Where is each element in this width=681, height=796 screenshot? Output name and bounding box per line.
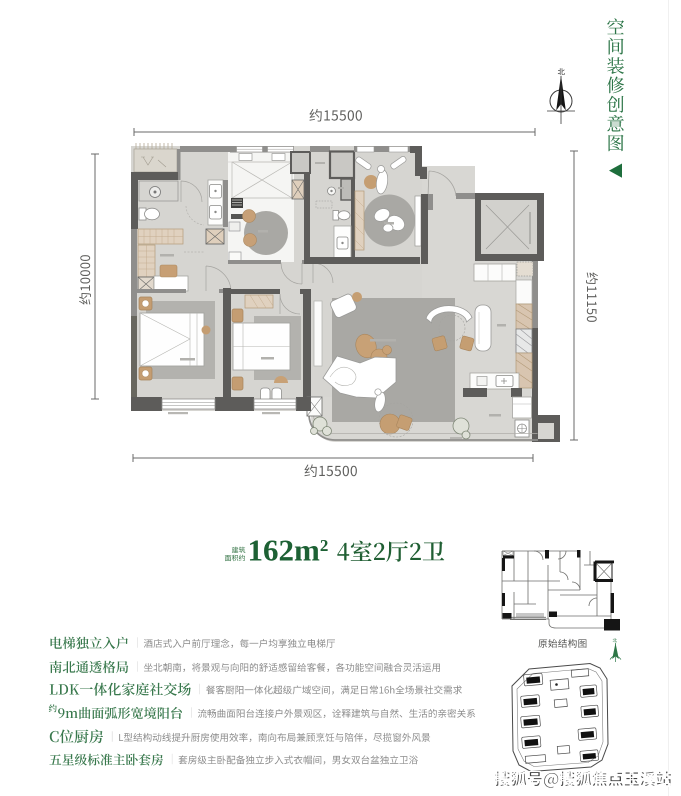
svg-text:162m2: 162m2 — [248, 533, 329, 568]
